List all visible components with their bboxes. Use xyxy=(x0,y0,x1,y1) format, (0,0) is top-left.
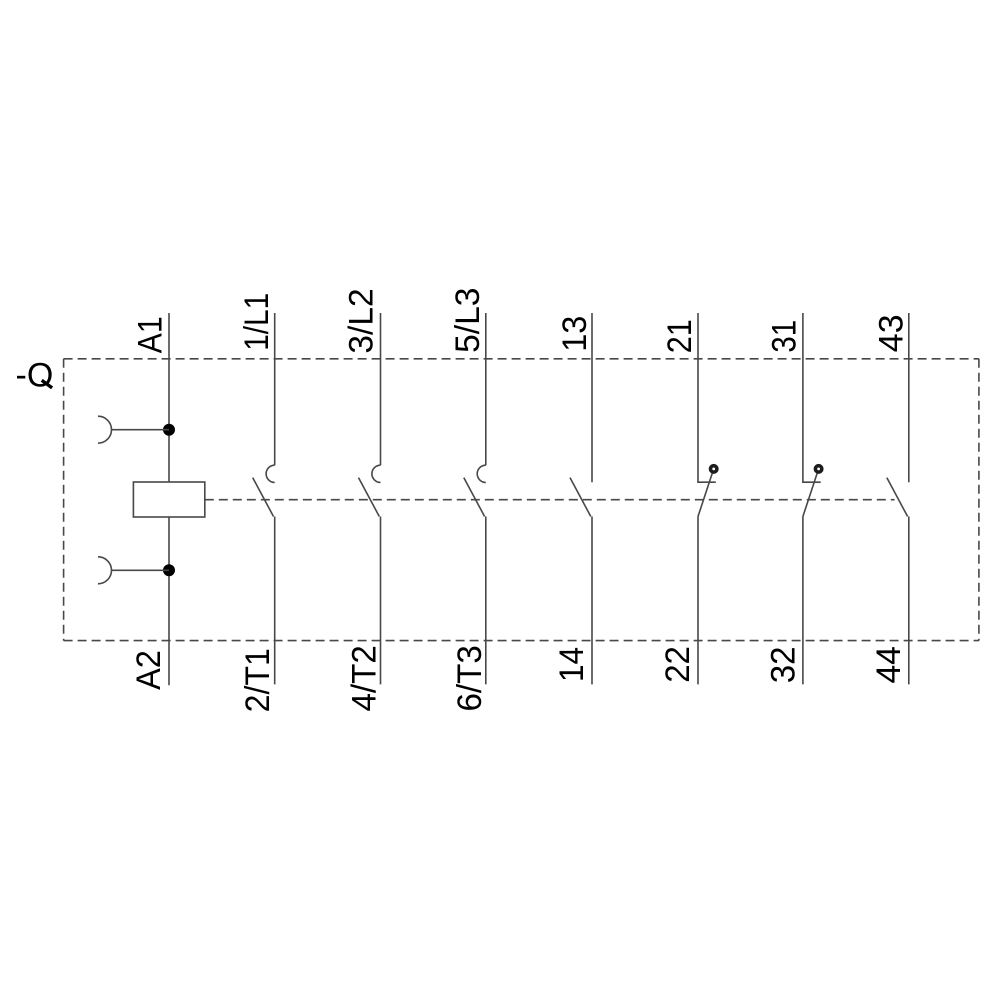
svg-text:32: 32 xyxy=(765,646,803,683)
svg-text:3/L2: 3/L2 xyxy=(343,288,381,353)
svg-text:21: 21 xyxy=(661,319,699,353)
svg-text:22: 22 xyxy=(659,646,697,683)
svg-text:44: 44 xyxy=(870,646,908,683)
svg-text:A1: A1 xyxy=(132,316,170,353)
svg-text:14: 14 xyxy=(553,647,591,682)
svg-text:43: 43 xyxy=(872,314,910,352)
svg-text:A2: A2 xyxy=(130,650,168,690)
svg-text:6/T3: 6/T3 xyxy=(451,645,489,711)
svg-text:4/T2: 4/T2 xyxy=(345,645,383,711)
svg-text:31: 31 xyxy=(766,320,804,353)
svg-text:2/T1: 2/T1 xyxy=(239,648,277,712)
svg-text:-O: -O xyxy=(16,357,54,395)
svg-text:13: 13 xyxy=(556,316,594,352)
svg-text:1/L1: 1/L1 xyxy=(238,293,276,351)
svg-text:5/L3: 5/L3 xyxy=(449,288,487,353)
